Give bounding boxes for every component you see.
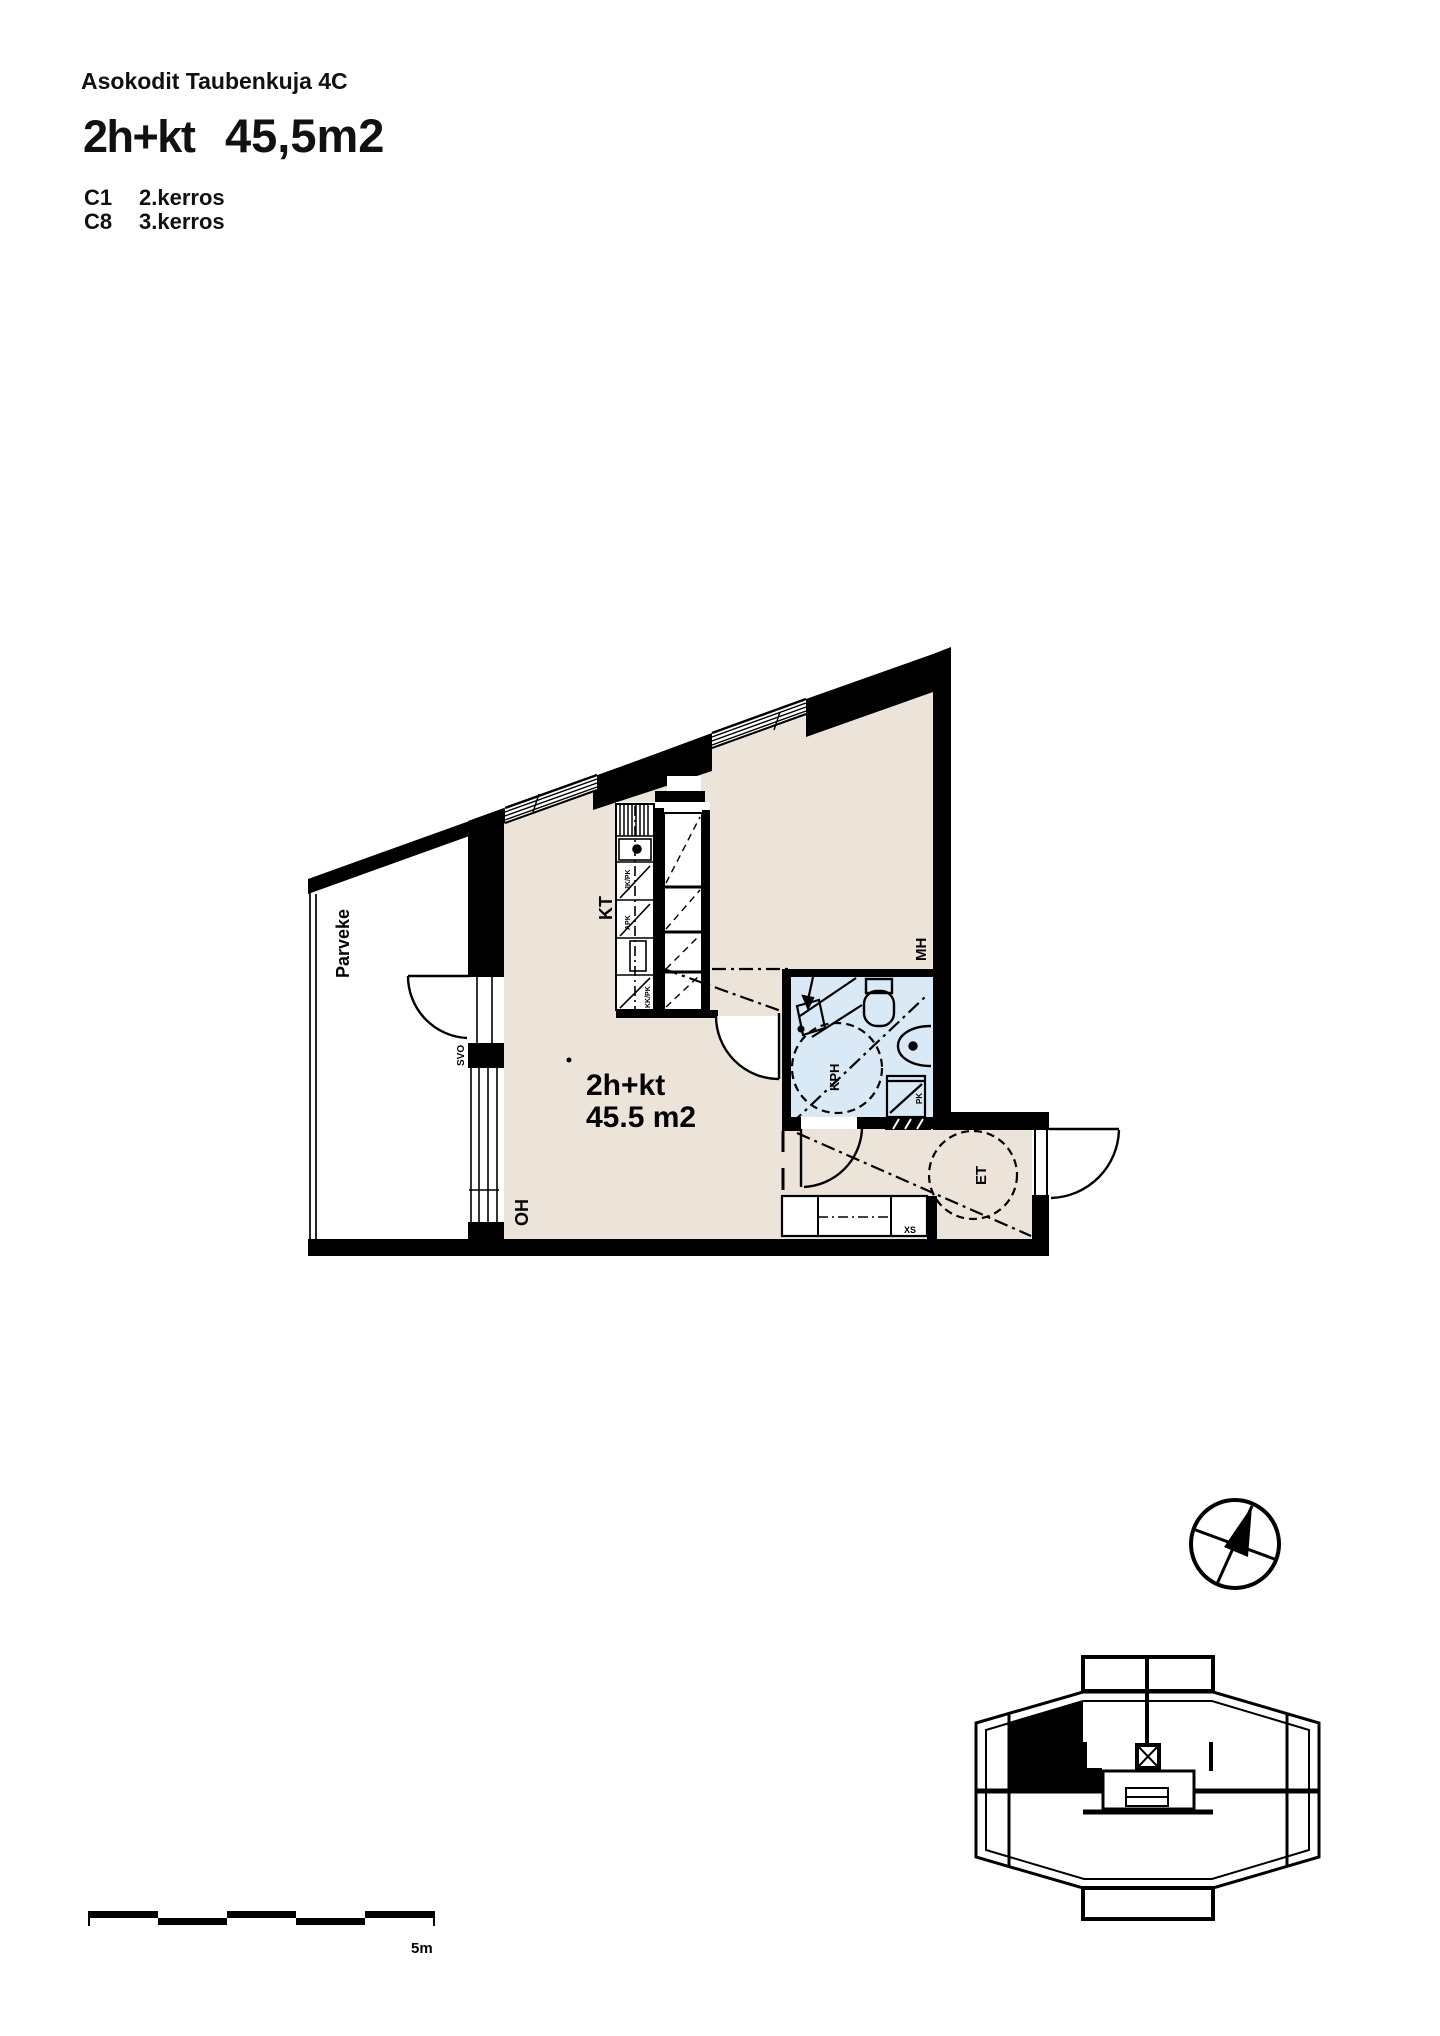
svg-text:Asokodit Taubenkuja 4C: Asokodit Taubenkuja 4C bbox=[81, 68, 348, 94]
svg-text:45,5m2: 45,5m2 bbox=[225, 109, 384, 162]
svg-text:XS: XS bbox=[904, 1225, 916, 1235]
svg-text:5m: 5m bbox=[411, 1940, 433, 1957]
svg-text:C8: C8 bbox=[84, 209, 112, 234]
svg-text:MH: MH bbox=[913, 938, 930, 961]
svg-text:Parveke: Parveke bbox=[333, 909, 353, 978]
svg-text:KT: KT bbox=[596, 896, 616, 920]
svg-text:45.5 m2: 45.5 m2 bbox=[586, 1101, 696, 1134]
svg-text:C1: C1 bbox=[84, 185, 112, 210]
svg-text:2h+kt: 2h+kt bbox=[83, 111, 196, 162]
svg-text:JK/PK: JK/PK bbox=[625, 869, 632, 890]
svg-text:3.kerros: 3.kerros bbox=[139, 209, 225, 234]
svg-text:KPH: KPH bbox=[827, 1064, 842, 1091]
svg-text:KK/PK: KK/PK bbox=[645, 986, 652, 1008]
svg-text:2h+kt: 2h+kt bbox=[586, 1069, 665, 1102]
svg-text:2.kerros: 2.kerros bbox=[139, 185, 225, 210]
svg-text:SVO: SVO bbox=[456, 1045, 467, 1066]
svg-text:OH: OH bbox=[512, 1199, 532, 1226]
svg-text:APK: APK bbox=[625, 915, 632, 930]
svg-text:ET: ET bbox=[973, 1166, 990, 1185]
svg-text:PK: PK bbox=[915, 1093, 924, 1104]
